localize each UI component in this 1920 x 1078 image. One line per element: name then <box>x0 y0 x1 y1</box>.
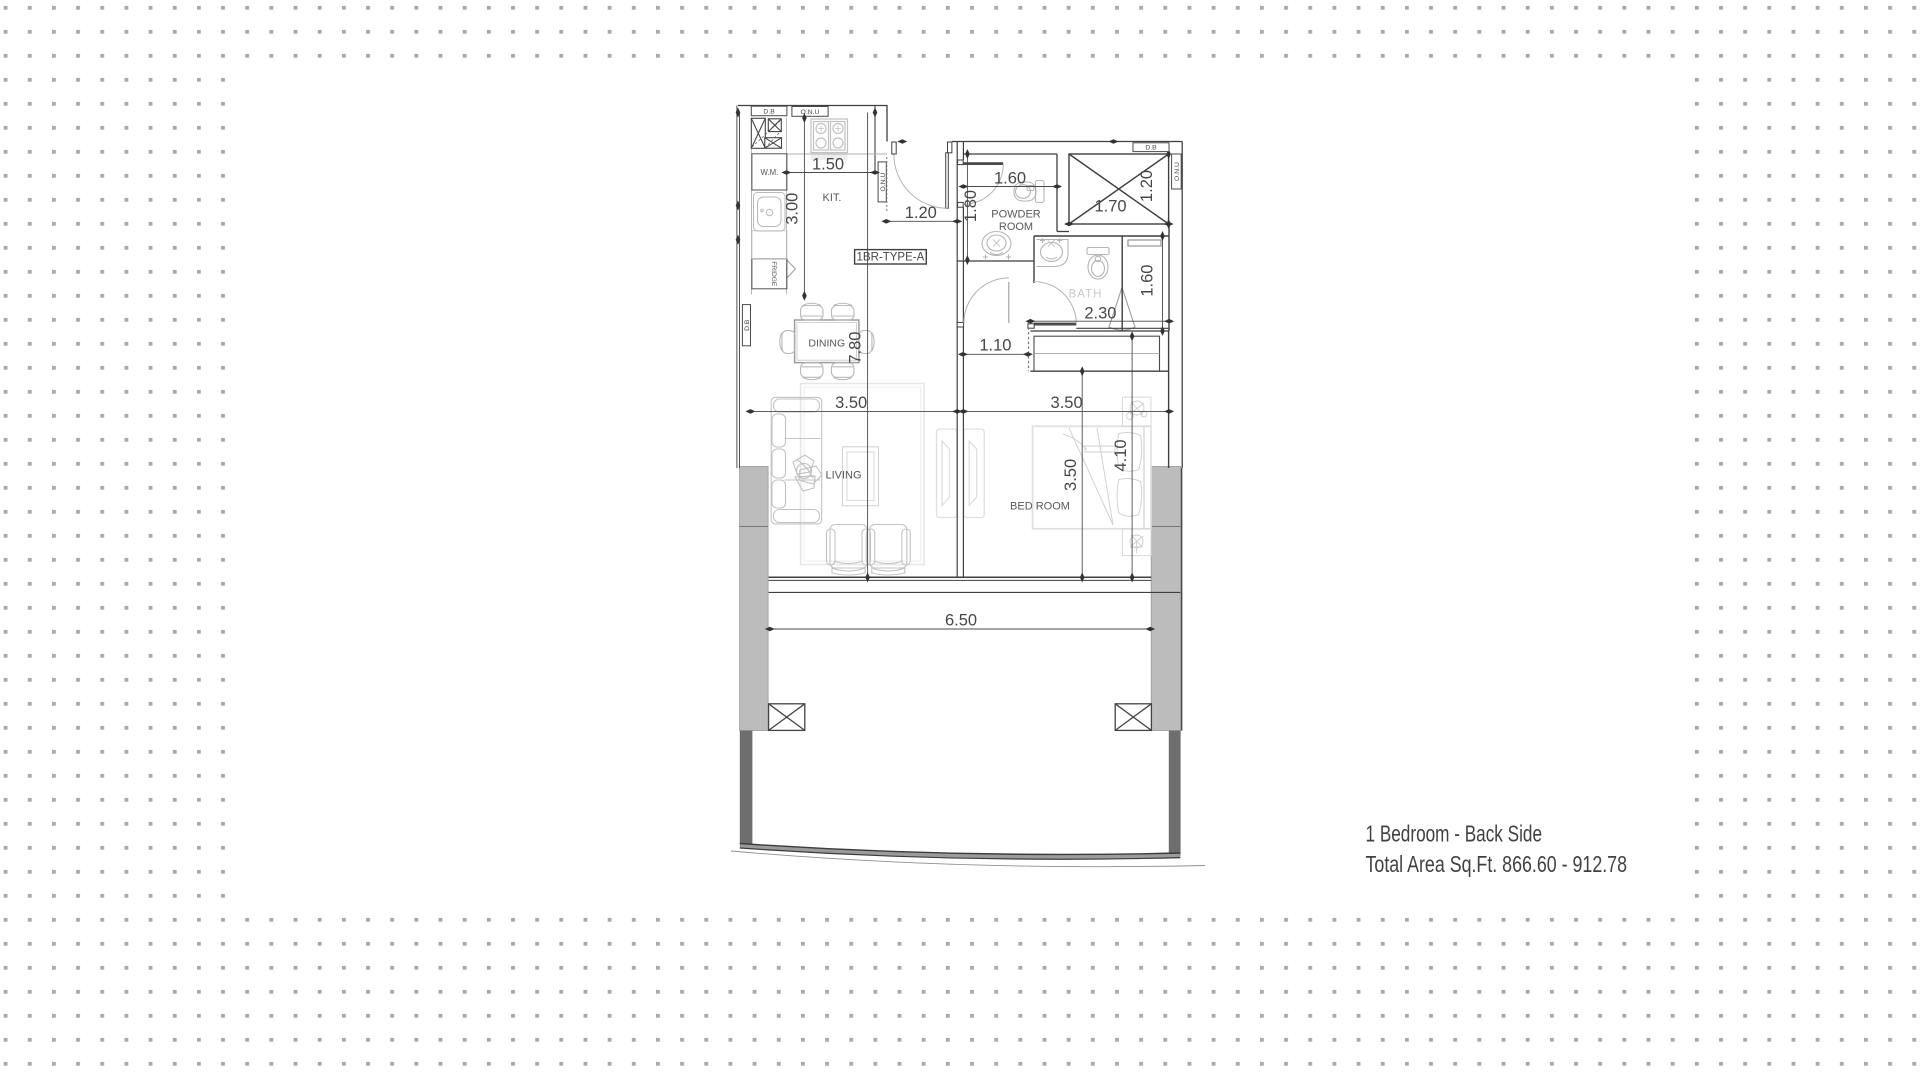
svg-text:1.50: 1.50 <box>812 156 844 174</box>
svg-text:1.20: 1.20 <box>1138 170 1156 202</box>
svg-text:1 Bedroom - Back Side: 1 Bedroom - Back Side <box>1366 821 1543 847</box>
svg-text:1.10: 1.10 <box>979 337 1011 355</box>
svg-text:BED ROOM: BED ROOM <box>1010 501 1070 513</box>
svg-text:KIT.: KIT. <box>823 192 842 204</box>
svg-text:3.50: 3.50 <box>1051 394 1083 412</box>
svg-text:D.B: D.B <box>763 109 775 116</box>
svg-text:3.50: 3.50 <box>1062 459 1080 491</box>
svg-text:W.M.: W.M. <box>761 168 779 177</box>
svg-text:O.N.U: O.N.U <box>801 109 820 116</box>
svg-text:1.60: 1.60 <box>1138 265 1156 297</box>
svg-text:O.N.U: O.N.U <box>880 172 887 191</box>
svg-text:1.80: 1.80 <box>962 190 980 222</box>
svg-text:D.B: D.B <box>744 319 751 331</box>
svg-text:1BR-TYPE-A: 1BR-TYPE-A <box>857 252 925 264</box>
svg-text:1.70: 1.70 <box>1094 198 1126 216</box>
svg-text:D.B: D.B <box>1145 145 1157 152</box>
svg-text:Total Area Sq.Ft. 866.60 - 912: Total Area Sq.Ft. 866.60 - 912.78 <box>1366 851 1628 877</box>
svg-text:O.N.U: O.N.U <box>1174 162 1181 181</box>
svg-text:1.60: 1.60 <box>994 170 1026 188</box>
svg-text:ROOM: ROOM <box>999 221 1033 233</box>
svg-text:2.30: 2.30 <box>1084 305 1116 323</box>
svg-text:DINING: DINING <box>808 338 845 350</box>
svg-text:POWDER: POWDER <box>991 209 1041 221</box>
svg-text:3.50: 3.50 <box>835 394 867 412</box>
svg-text:3.00: 3.00 <box>783 193 801 225</box>
svg-text:6.50: 6.50 <box>945 612 977 630</box>
svg-text:BATH: BATH <box>1069 289 1103 301</box>
svg-text:LIVING: LIVING <box>825 470 861 482</box>
svg-text:FRIDGE: FRIDGE <box>770 261 777 287</box>
svg-text:4.10: 4.10 <box>1112 439 1130 471</box>
svg-text:7.80: 7.80 <box>846 332 864 364</box>
svg-text:1.20: 1.20 <box>905 204 937 222</box>
